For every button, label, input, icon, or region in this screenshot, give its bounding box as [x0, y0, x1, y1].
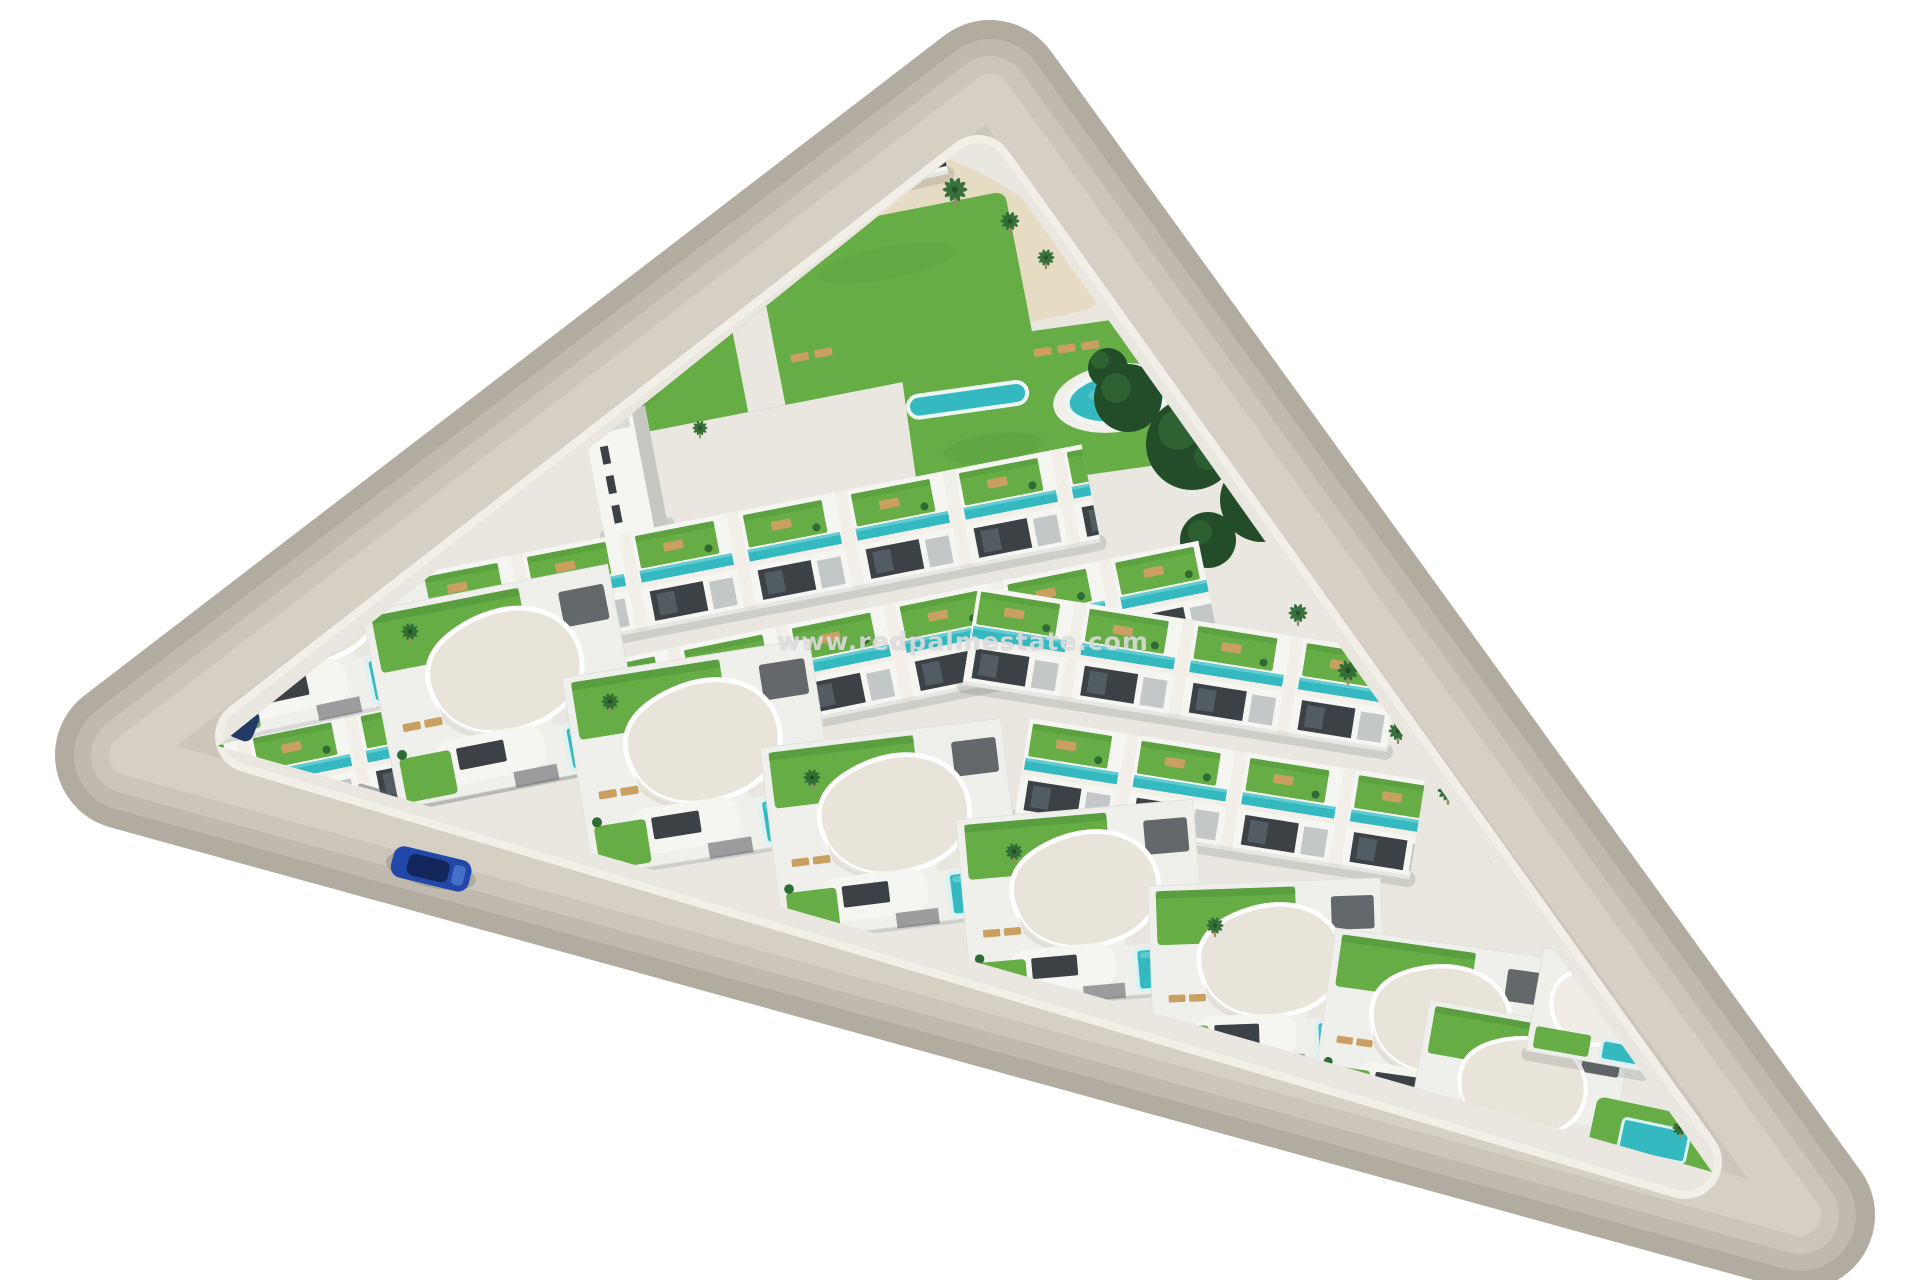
site-render: www.redpalmestate.com — [0, 0, 1920, 1280]
site-render-svg: www.redpalmestate.com — [0, 0, 1920, 1280]
watermark-text: www.redpalmestate.com — [777, 627, 1149, 656]
plaza-tree — [684, 182, 704, 202]
